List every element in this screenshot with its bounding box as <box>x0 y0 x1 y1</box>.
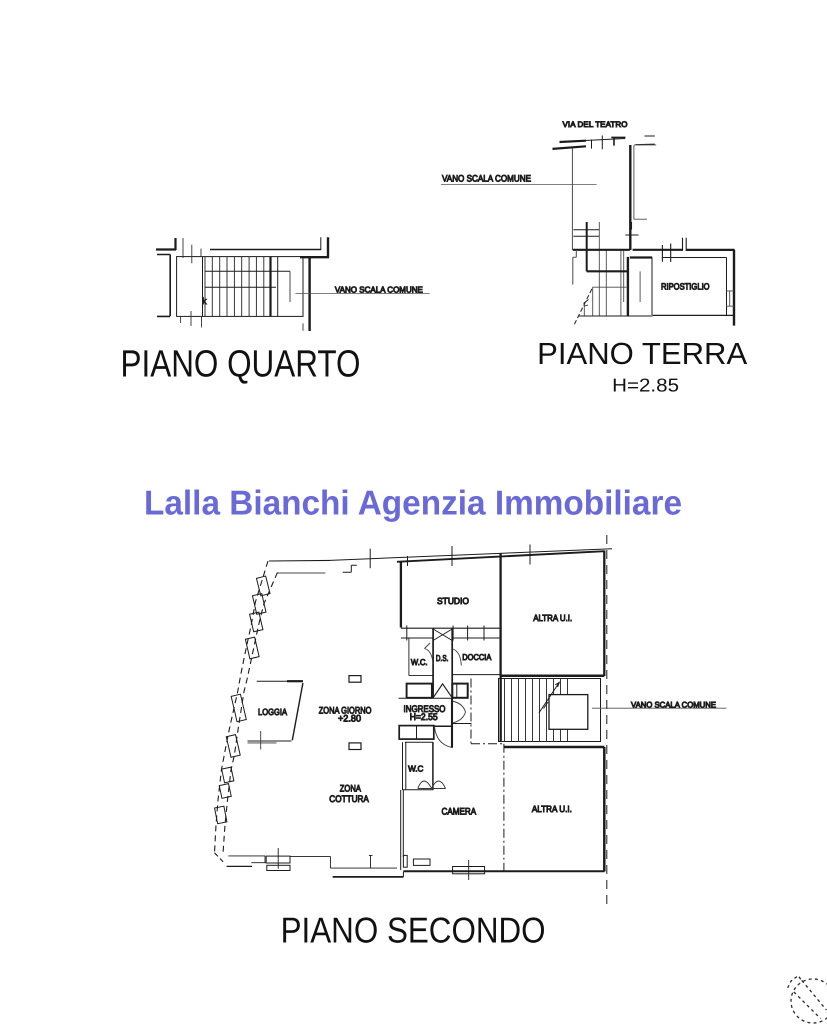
svg-text:PIANO SECONDO: PIANO SECONDO <box>281 910 546 951</box>
svg-text:H=2.85: H=2.85 <box>612 375 679 396</box>
svg-text:VANO SCALA COMUNE: VANO SCALA COMUNE <box>335 285 423 295</box>
svg-text:PIANO QUARTO: PIANO QUARTO <box>121 343 361 385</box>
svg-text:ALTRA U.I.: ALTRA U.I. <box>533 613 572 623</box>
svg-text:W.C: W.C <box>408 764 423 774</box>
svg-text:STUDIO: STUDIO <box>437 596 469 606</box>
svg-text:+2.80: +2.80 <box>338 714 361 725</box>
svg-text:COTTURA: COTTURA <box>329 794 369 805</box>
svg-text:LOGGIA: LOGGIA <box>258 707 287 717</box>
svg-text:CAMERA: CAMERA <box>442 806 477 817</box>
svg-text:VIA DEL TEATRO: VIA DEL TEATRO <box>563 120 628 129</box>
svg-text:W.C.: W.C. <box>411 657 428 667</box>
svg-text:ALTRA U.I.: ALTRA U.I. <box>532 804 572 814</box>
svg-text:Lalla Bianchi Agenzia Immobili: Lalla Bianchi Agenzia Immobiliare <box>144 485 682 523</box>
svg-text:DOCCIA: DOCCIA <box>462 652 491 662</box>
svg-text:D.S.: D.S. <box>436 653 449 663</box>
svg-text:PIANO TERRA: PIANO TERRA <box>537 337 748 371</box>
svg-text:VANO SCALA COMUNE: VANO SCALA COMUNE <box>442 174 531 184</box>
svg-text:k: k <box>202 296 207 306</box>
svg-text:VANO SCALA COMUNE: VANO SCALA COMUNE <box>631 700 717 709</box>
svg-text:ZONA: ZONA <box>340 784 362 795</box>
svg-text:H=2.55: H=2.55 <box>410 712 438 723</box>
svg-text:RIPOSTIGLIO: RIPOSTIGLIO <box>661 281 710 291</box>
